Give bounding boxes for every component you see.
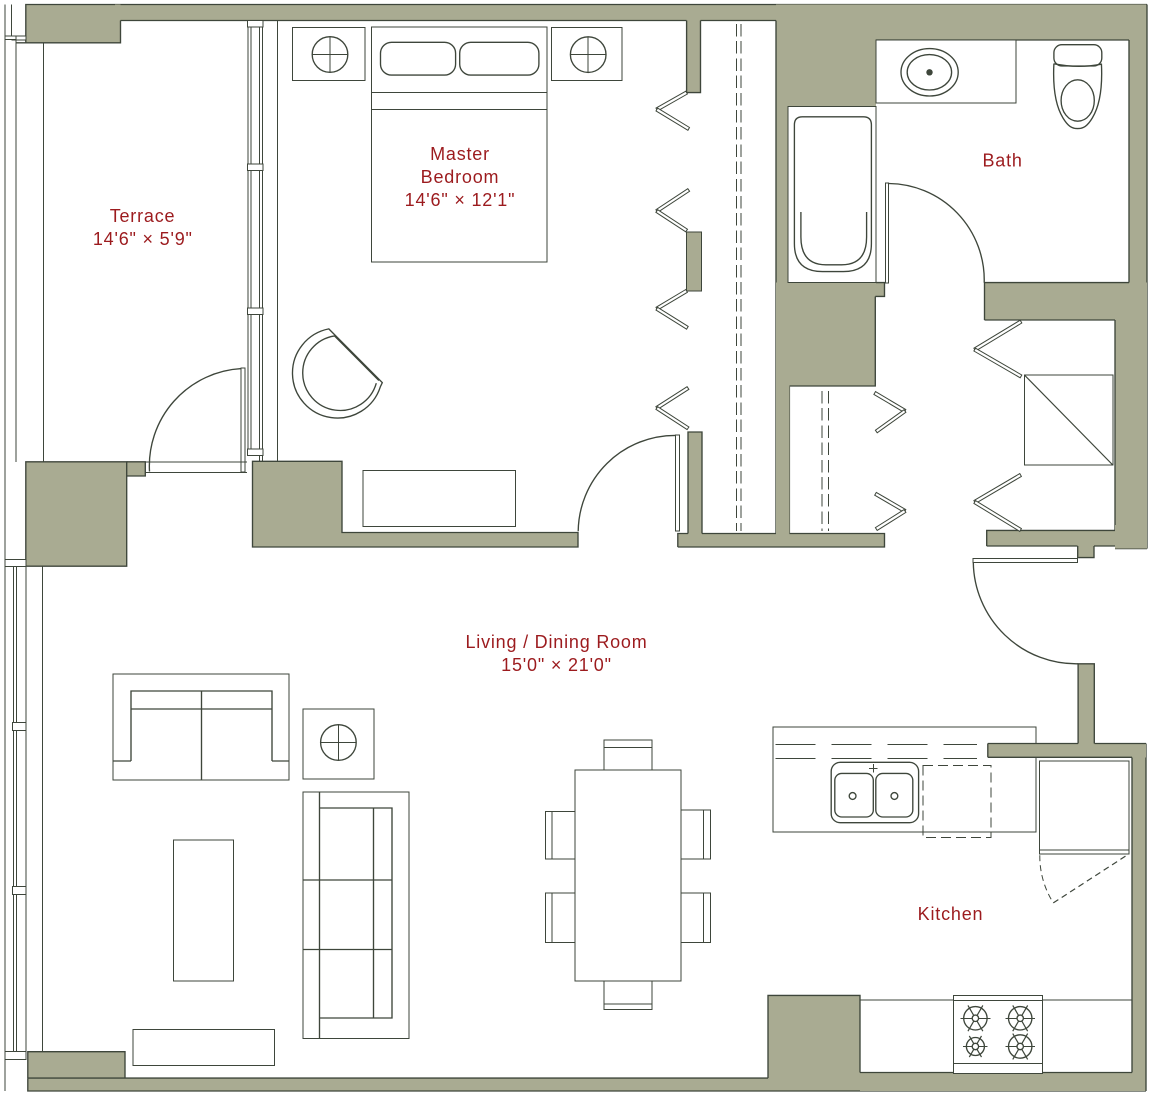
- svg-text:15'0" × 21'0": 15'0" × 21'0": [501, 655, 612, 675]
- svg-text:14'6" × 12'1": 14'6" × 12'1": [405, 190, 516, 210]
- svg-text:Bath: Bath: [982, 151, 1022, 171]
- svg-text:14'6" × 5'9": 14'6" × 5'9": [93, 229, 193, 249]
- svg-text:Master: Master: [430, 144, 490, 164]
- svg-text:Bedroom: Bedroom: [421, 167, 500, 187]
- svg-text:Living / Dining Room: Living / Dining Room: [465, 632, 647, 652]
- svg-text:Kitchen: Kitchen: [918, 904, 984, 924]
- svg-text:Terrace: Terrace: [110, 206, 176, 226]
